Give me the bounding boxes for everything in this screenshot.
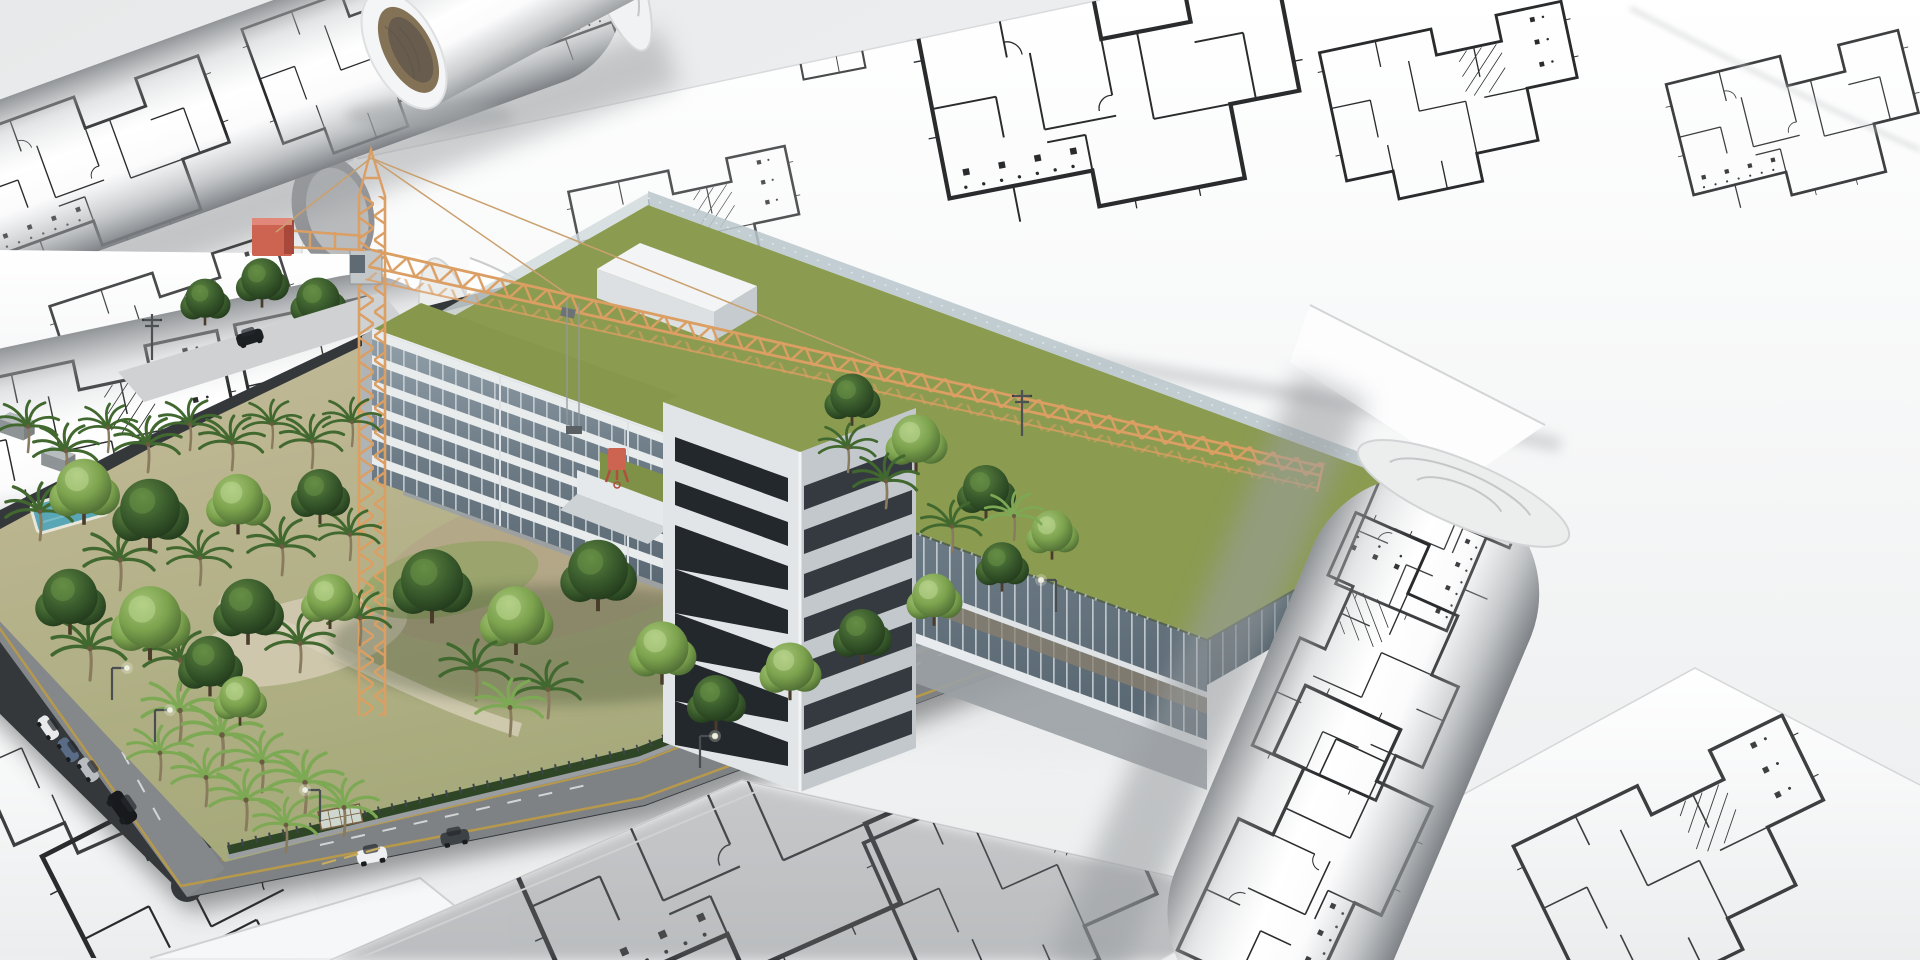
scene-3d-render	[0, 0, 1920, 960]
render-canvas	[0, 0, 1920, 960]
cab-window	[350, 255, 365, 273]
hook-block	[566, 426, 582, 434]
